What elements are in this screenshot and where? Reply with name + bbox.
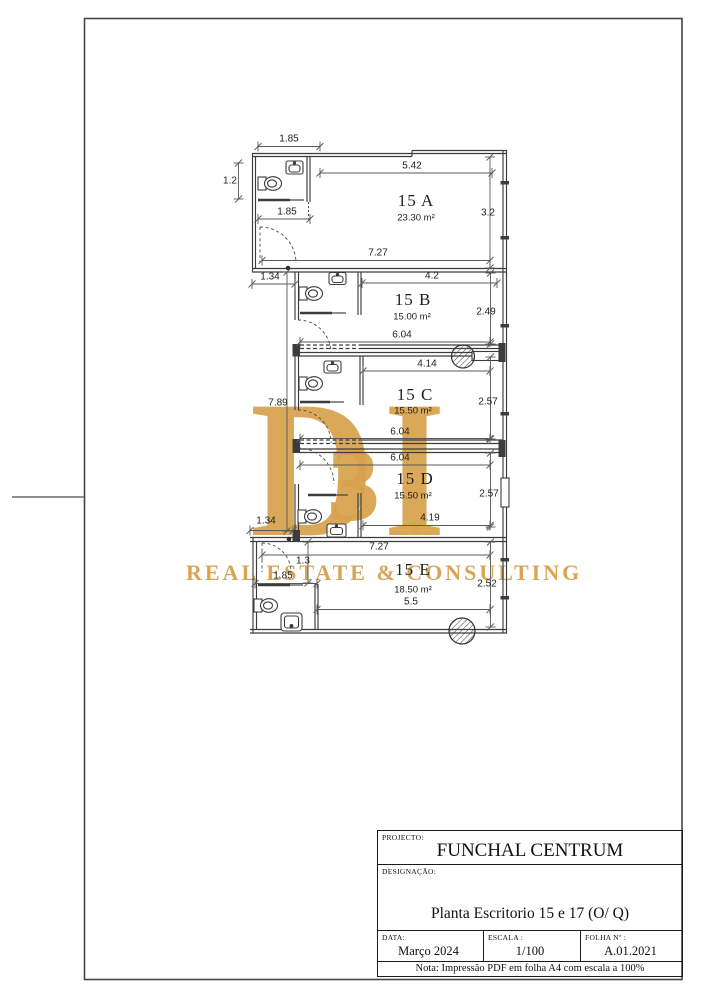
room-name: 15 C bbox=[397, 385, 434, 405]
date-value: Março 2024 bbox=[378, 944, 479, 959]
dimension-label: 4.19 bbox=[420, 513, 439, 524]
room-name: 15 D bbox=[396, 469, 434, 489]
sheet-number-value: A.01.2021 bbox=[581, 944, 680, 959]
dimension-label: 6.04 bbox=[392, 330, 411, 341]
room-area: 15.50 m² bbox=[394, 406, 432, 417]
scale-cell: ESCALA : 1/100 bbox=[484, 931, 581, 961]
title-block-designation-row: DESIGNAÇÃO: Planta Escritorio 15 e 17 (O… bbox=[378, 865, 682, 931]
title-block-project-row: PROJECTO: FUNCHAL CENTRUM bbox=[378, 831, 682, 865]
designation-label: DESIGNAÇÃO: bbox=[382, 867, 436, 876]
dimension-label: 1.34 bbox=[260, 272, 279, 283]
room-name: 15 B bbox=[395, 290, 432, 310]
scale-value: 1/100 bbox=[484, 944, 576, 959]
title-block: PROJECTO: FUNCHAL CENTRUM DESIGNAÇÃO: Pl… bbox=[377, 830, 683, 977]
title-block-note-row: Nota: Impressão PDF em folha A4 com esca… bbox=[378, 962, 682, 976]
dimension-label: 7.89 bbox=[268, 398, 287, 409]
dimension-label: 6.04 bbox=[390, 453, 409, 464]
dimension-label: 4.14 bbox=[417, 359, 436, 370]
room-area: 23.30 m² bbox=[397, 213, 435, 224]
sheet-number-label: FOLHA Nº : bbox=[585, 933, 626, 942]
room-name: 15 E bbox=[395, 560, 431, 580]
dimension-label: 2.57 bbox=[478, 397, 497, 408]
drawing-sheet: D 3 I ® REAL ESTATE & CONSULTING bbox=[0, 0, 707, 1000]
dimension-label: 5.5 bbox=[404, 597, 418, 608]
room-area: 15.00 m² bbox=[393, 312, 431, 323]
dimension-label: 4.2 bbox=[425, 271, 439, 282]
dimension-label: 1.3 bbox=[296, 556, 310, 567]
dimension-label: 7.27 bbox=[368, 248, 387, 259]
dimension-label: 1.85 bbox=[277, 207, 296, 218]
dimension-label: 5.42 bbox=[402, 161, 421, 172]
dimension-label: 2.52 bbox=[477, 579, 496, 590]
dimension-label: 6.04 bbox=[390, 427, 409, 438]
room-area: 15.50 m² bbox=[394, 491, 432, 502]
dimension-label: 7.27 bbox=[369, 542, 388, 553]
dimension-label: 1.2 bbox=[223, 176, 237, 187]
room-area: 18.50 m² bbox=[394, 585, 432, 596]
sheet-number-cell: FOLHA Nº : A.01.2021 bbox=[581, 931, 684, 961]
dimension-label: 2.57 bbox=[479, 489, 498, 500]
room-name: 15 A bbox=[398, 191, 435, 211]
date-label: DATA: bbox=[382, 933, 405, 942]
note-text: Nota: Impressão PDF em folha A4 com esca… bbox=[378, 963, 682, 974]
project-name: FUNCHAL CENTRUM bbox=[378, 840, 682, 862]
title-block-meta-row: DATA: Março 2024 ESCALA : 1/100 FOLHA Nº… bbox=[378, 931, 682, 962]
scale-label: ESCALA : bbox=[488, 933, 523, 942]
designation-value: Planta Escritorio 15 e 17 (O/ Q) bbox=[378, 905, 682, 923]
dimension-label: 2.49 bbox=[476, 307, 495, 318]
dimension-label: 1.85 bbox=[273, 571, 292, 582]
dimension-label: 1.85 bbox=[279, 134, 298, 145]
dimension-label: 3.2 bbox=[481, 208, 495, 219]
date-cell: DATA: Março 2024 bbox=[378, 931, 484, 961]
dimension-label: 1.34 bbox=[256, 516, 275, 527]
